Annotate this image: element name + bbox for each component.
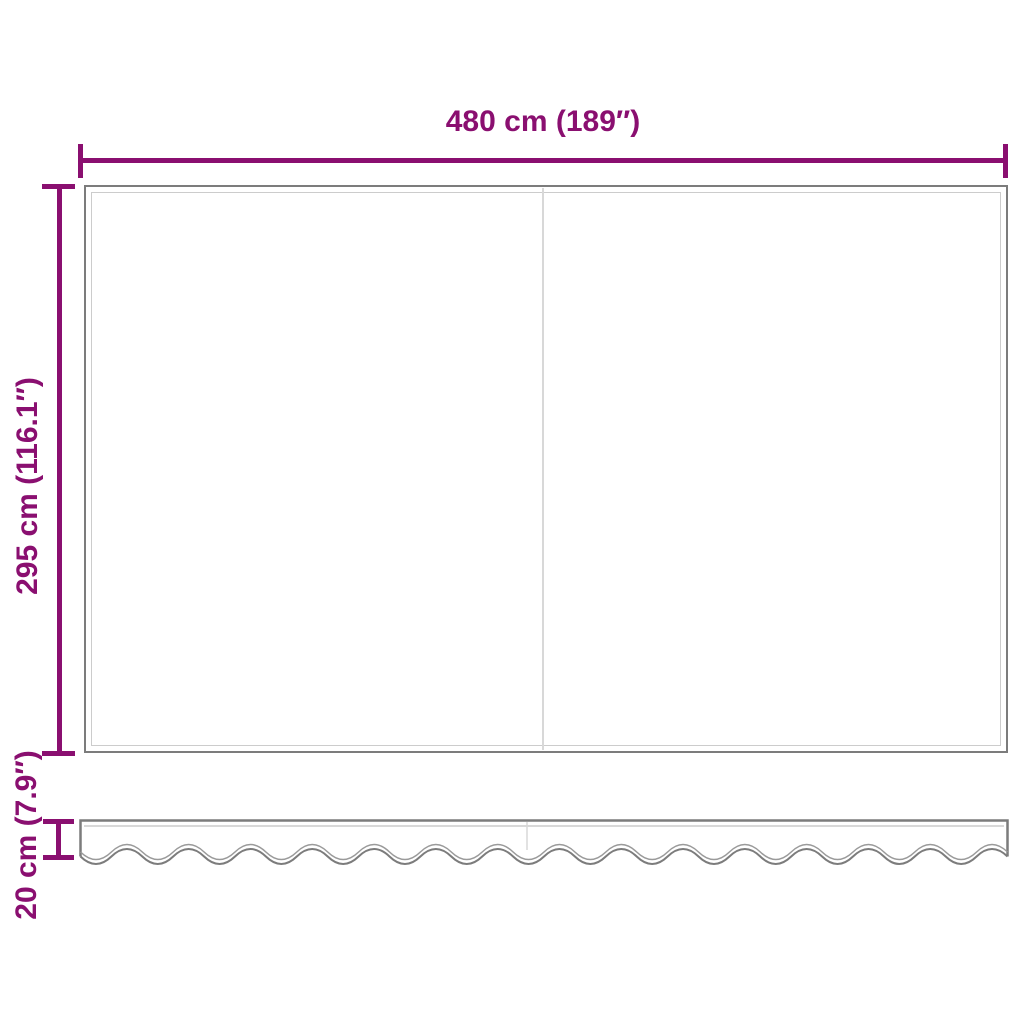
height-dimension-line — [57, 187, 62, 753]
height-dimension-label: 295 cm (116.1″) — [13, 377, 43, 595]
valance-dimension-line — [56, 822, 61, 858]
valance-dimension-bottom-cap — [43, 855, 74, 860]
width-dimension-label: 480 cm (189″) — [446, 107, 641, 137]
width-dimension-line — [80, 158, 1006, 163]
height-dimension-top-cap — [42, 184, 75, 189]
fabric-panel-center-seam — [542, 188, 544, 750]
fabric-panel — [84, 185, 1008, 753]
width-dimension-right-cap — [1003, 144, 1008, 178]
width-dimension-left-cap — [78, 144, 83, 178]
valance — [79, 817, 1009, 877]
valance-dimension-label: 20 cm (7.9″) — [12, 750, 42, 919]
height-dimension-bottom-cap — [42, 751, 75, 756]
fabric-panel-hem-line — [91, 192, 1001, 746]
product-dimension-diagram: 480 cm (189″) 295 cm (116.1″) 20 cm (7.9… — [0, 0, 1024, 1024]
valance-dimension-top-cap — [43, 819, 74, 824]
